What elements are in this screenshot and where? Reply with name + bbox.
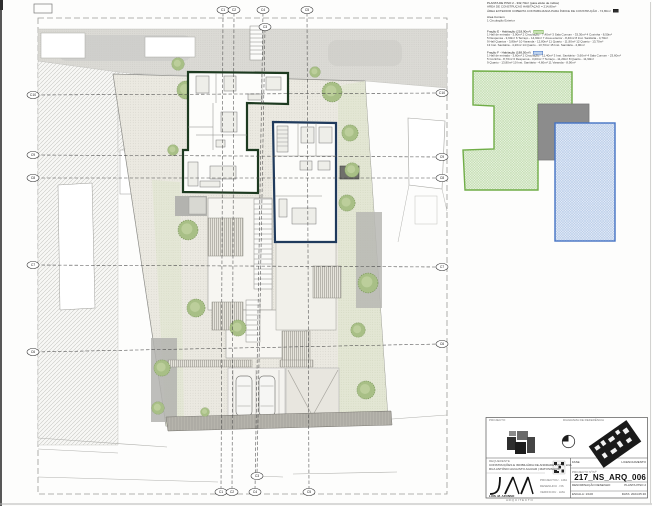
car-top-view (236, 376, 252, 416)
grid-marker-label: C5 (305, 8, 309, 12)
project-number: 217_NS_ARQ_006 (560, 473, 646, 482)
logo-text: LUIS .M. AFONSO (489, 495, 514, 499)
denominacao-value: PLANTA PISO 2 (624, 484, 646, 488)
drawing-sheet: C1 C2 C4 C5 C3 C1 C2 C4 C5 C3 C10 C9 C8 … (0, 0, 652, 506)
info-line: 9 Quarto - 13,80m² 10 Inst. Sanitária - … (487, 62, 649, 66)
info-line: 1 Circulação Exterior (487, 20, 649, 24)
grid-marker-label: C8 (440, 176, 444, 180)
info-group-summary: PLANTA DE PISO 2 - 332,70m² (para efeito… (487, 2, 649, 13)
dark-area-chip (613, 9, 619, 13)
projecto-label: PROJECTO (489, 419, 505, 423)
grid-marker-label: C1 (221, 8, 225, 12)
diagrama-label: DIAGRAMA DE REFERÊNCIA (563, 419, 604, 423)
orientation-pie-icon (562, 435, 574, 447)
grid-marker-label: C10 (30, 93, 36, 97)
data-label: DATA: (622, 493, 630, 496)
grid-marker-label: C9 (440, 155, 444, 159)
requerente-line1: CONSTRUÇÕES E IMOBILIÁRIA DE ANDRADE PIN… (489, 464, 572, 468)
info-line: 13 Inst. Sanitária - 4,20m² 14 Quarto - … (487, 44, 649, 48)
grid-marker-label: C6 (31, 350, 35, 354)
building-b-plan (273, 122, 336, 242)
fase-label: FASE (572, 461, 580, 465)
area-info-block: PLANTA DE PISO 2 - 332,70m² (para efeito… (487, 2, 650, 135)
escala-label: ESCALA: (572, 493, 585, 496)
coord-row: DESENHOU . NS (540, 485, 564, 489)
grid-marker-label: C10 (439, 91, 445, 95)
info-group-common: Área Comum 1 Circulação Exterior (487, 16, 649, 23)
grid-marker-label: C7 (31, 263, 35, 267)
existing-building-footprint (145, 37, 195, 57)
existing-building-footprint (41, 33, 85, 58)
requerente-line2: RUA ANTÓNIO AUGUSTO AGUIAR | MATOSINHOS (489, 468, 559, 472)
denominacao-label: DENOMINAÇÃO DESENHO (572, 484, 610, 488)
grid-marker-label: C3 (263, 25, 267, 29)
grid-marker-label: C2 (230, 490, 234, 494)
grid-marker-label: C4 (261, 8, 265, 12)
grid-marker-label: C5 (307, 490, 311, 494)
escala-value: 1/100 (586, 493, 594, 496)
grid-marker-label: C3 (255, 474, 259, 478)
requerente-label: REQUERENTE (489, 460, 510, 464)
grid-marker-label: C7 (440, 265, 444, 269)
fase-row: FASELICENCIAMENTO (572, 461, 646, 471)
coord-row: VERIFICOU . LMA (540, 491, 565, 495)
info-group-fracao-e: Fração E - Habitação (218,90m²) 1 Hall d… (487, 30, 649, 48)
data-group: DATA: 2024.05.30 (622, 493, 646, 497)
fold-mark (34, 4, 52, 13)
car-top-view (259, 376, 275, 416)
grid-marker-label: C8 (31, 176, 35, 180)
grid-marker-label: C2 (232, 8, 236, 12)
info-group-fracao-f: Fração F - Habitação (188,50m²) 1 Hall d… (487, 51, 649, 65)
fase-value: LICENCIAMENTO (621, 461, 646, 465)
driveway-ramp (286, 368, 339, 418)
grid-marker-label: C6 (440, 342, 444, 346)
legend-blue-area (555, 123, 615, 241)
escala-group: ESCALA: 1/100 (572, 493, 593, 497)
grid-marker-label: C1 (219, 490, 223, 494)
data-value: 2024.05.30 (631, 493, 646, 496)
logo-subtext: A R Q U I T E C T O (506, 499, 533, 503)
grid-marker-label: C9 (31, 153, 35, 157)
info-line: ÁREA EXTERIOR COBERTA CONTABILIZADA PARA… (487, 9, 649, 13)
grid-marker-label: C4 (253, 490, 257, 494)
escala-data-row: ESCALA: 1/100 DATA: 2024.05.30 (572, 493, 646, 503)
